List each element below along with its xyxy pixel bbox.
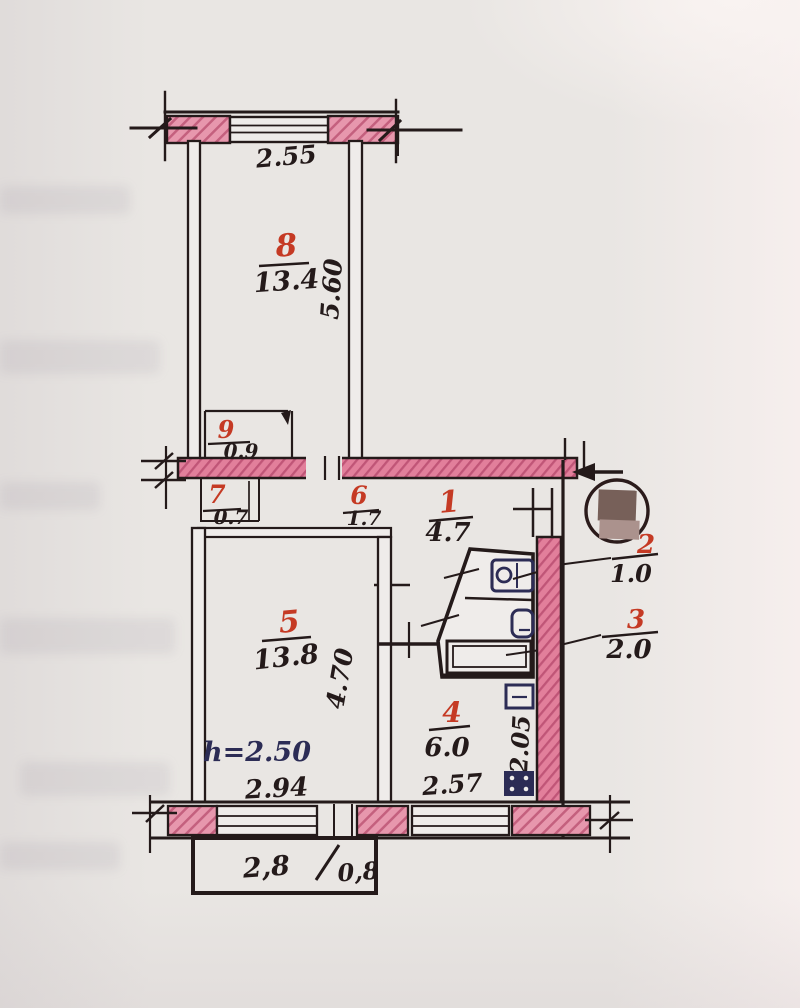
entrance-arrow [572,463,623,481]
room-number: 1 [437,484,461,521]
room-area: 6.0 [424,733,469,763]
corridor: 7 0.7 6 1.7 [198,479,391,537]
wall [188,141,200,460]
window-symbol [230,117,328,142]
door-swing-arrow [281,410,291,425]
balcony: 2,8 0,8 [193,838,381,893]
room-8: 8 13.4 5.60 [188,141,362,460]
fraction-slash [316,845,339,880]
room-area: 0.7 [214,505,249,529]
dim-kitchen-depth: 2.05 [504,714,536,775]
wall [349,141,362,460]
room-number: 5 [277,604,301,641]
room-area: 1.7 [347,506,382,530]
wall [378,537,391,802]
censored-region [597,489,641,539]
wall-pier [357,806,408,835]
entrance-door [513,488,552,537]
dim-kitchen-width: 2.57 [420,768,484,801]
balcony-dim-left: 2,8 [241,850,291,884]
room-number: 4 [442,696,461,729]
room-area: 13.8 [252,639,321,677]
room-5: 5 13.8 4.70 h=2.50 2.94 [192,528,391,806]
room-number: 3 [627,605,645,635]
window-symbol [412,806,509,835]
dim-room5-depth: 4.70 [320,645,359,711]
room-area: 4.7 [425,518,470,548]
right-exterior-wall [537,460,563,839]
room-number: 8 [273,227,298,264]
top-exterior-wall: 2.55 [131,92,461,174]
stove-icon [504,771,534,796]
bottom-exterior-wall [132,795,633,853]
floor-plan-drawing: 2.55 8 13.4 5.60 9 0.9 [0,0,800,1008]
wall [198,528,391,537]
room-area: 1.0 [610,559,652,588]
room-area: 13.4 [253,264,321,300]
room-area: 2.0 [605,635,651,665]
wall-pier [168,806,217,835]
ceiling-height-note: h=2.50 [203,737,311,768]
wall-pier [512,806,590,835]
window-symbol [217,806,317,835]
room-9-closet: 9 0.9 [205,410,292,463]
dim-top-window: 2.55 [254,139,318,173]
balcony-dim-right: 0,8 [337,856,381,888]
dim-room8-depth: 5.60 [315,257,348,320]
scanned-floor-plan-page: 2.55 8 13.4 5.60 9 0.9 [0,0,800,1008]
water-heater-icon [506,685,533,708]
